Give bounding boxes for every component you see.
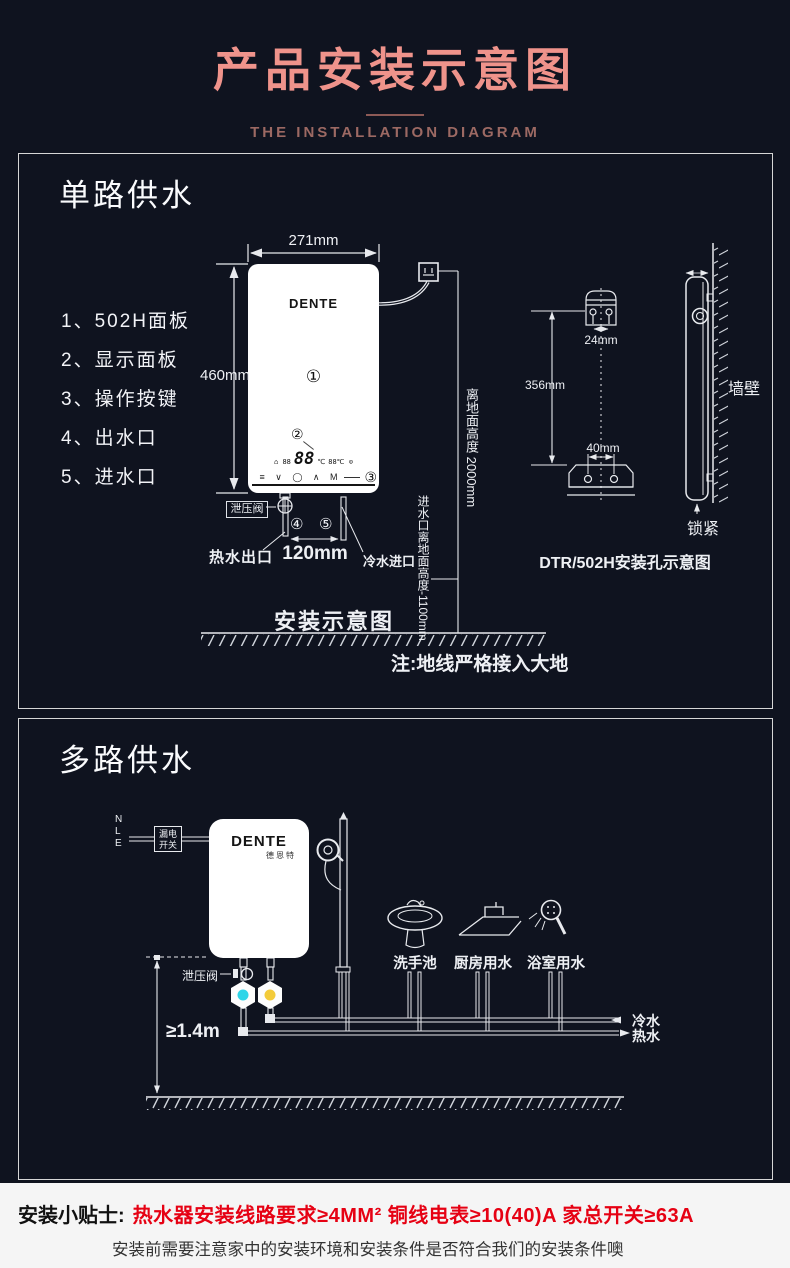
dim-height-label: 460mm	[195, 367, 255, 384]
single-supply-title: 单路供水	[59, 170, 195, 215]
tips-warning: 热水器安装线路要求≥4MM² 铜线电表≥10(40)A 家总开关≥63A	[133, 1199, 694, 1228]
multi-supply-section: 多路供水 N L E 漏电 开关 DENTE 德恩特 洗手池 厨房用水 浴室用水…	[18, 718, 773, 1180]
tips-row: 安装小贴士: 热水器安装线路要求≥4MM² 铜线电表≥10(40)A 家总开关≥…	[0, 1183, 790, 1228]
callout-buttons-leader	[344, 477, 360, 478]
brand-logo-cn: 德恩特	[209, 850, 309, 861]
hot-water-label: 热水	[632, 1026, 660, 1046]
callout-inlet: ⑤	[319, 515, 332, 533]
valve-hot-icon	[258, 981, 282, 1009]
min-height-label: ≥1.4m	[166, 1021, 220, 1043]
wire-l: L	[115, 826, 122, 838]
basin-icon	[388, 901, 442, 948]
brand-logo: DENTE	[209, 833, 309, 850]
header: 产品安装示意图 THE INSTALLATION DIAGRAM	[0, 0, 790, 141]
title-divider	[366, 114, 424, 116]
heater-bottom-line	[252, 484, 375, 486]
hot-outlet-label: 热水出口	[209, 546, 273, 567]
shower-rail-icon	[336, 812, 350, 972]
heater-front-view: DENTE ① ② ⌂ 88 88 ℃ 88℃ ⊙ ≡ ∨ ◯ ∧ M ③	[248, 264, 379, 493]
socket-height-label: 离地面高度 2000mm	[462, 388, 481, 548]
diagram-caption: 安装示意图	[274, 604, 394, 636]
page: 产品安装示意图 THE INSTALLATION DIAGRAM	[0, 0, 790, 1268]
pressure-relief-valve-icon	[220, 969, 253, 980]
brand-logo: DENTE	[248, 296, 379, 311]
mount-caption: DTR/502H安装孔示意图	[539, 549, 711, 573]
inlet-height-label: 进水口离地面高度-1100mm	[415, 495, 432, 645]
wire-e: E	[115, 838, 122, 850]
breaker-line-1: 漏电	[155, 829, 181, 840]
breaker-box: 漏电 开关	[154, 826, 182, 852]
page-subtitle: THE INSTALLATION DIAGRAM	[0, 124, 790, 141]
part-item-3: 3、操作按键	[61, 380, 190, 419]
unit-side-view	[686, 273, 713, 500]
dim-pipe-spacing-label: 120mm	[281, 543, 349, 565]
callout-display: ②	[291, 426, 304, 443]
shower-head-icon	[529, 901, 565, 935]
socket-height-line	[431, 271, 458, 633]
lcd-unit: ℃	[317, 458, 325, 466]
power-socket-icon	[419, 263, 438, 281]
power-cable	[379, 282, 428, 304]
lcd-right: 88℃ ⊙	[328, 458, 353, 466]
multi-supply-linework	[19, 719, 772, 1177]
hot-flow-arrow	[620, 1030, 630, 1037]
lcd-display: ⌂ 88 88 ℃ 88℃ ⊙	[254, 449, 373, 469]
tips-note: 安装前需要注意家中的安装环境和安装条件是否符合我们的安装条件噢	[0, 1228, 790, 1260]
multi-supply-title: 多路供水	[59, 735, 195, 780]
wall-label: 墙壁	[728, 375, 760, 399]
tips-footer: 安装小贴士: 热水器安装线路要求≥4MM² 铜线电表≥10(40)A 家总开关≥…	[0, 1183, 790, 1268]
callout-panel: ①	[248, 367, 379, 387]
valve-cold-icon	[231, 981, 255, 1009]
dim-hole-top-label: 24mm	[583, 333, 619, 347]
part-item-1: 1、502H面板	[61, 302, 190, 341]
ground-note: 注:地线严格接入大地	[391, 649, 568, 676]
dim-hole-span-label: 356mm	[515, 378, 575, 392]
wire-n: N	[115, 814, 122, 826]
ground-hatch	[146, 1097, 624, 1110]
lcd-left: ⌂ 88	[274, 458, 291, 466]
relief-valve-label: 泄压阀	[182, 967, 218, 984]
fixture-label-kitchen: 厨房用水	[443, 952, 523, 973]
kitchen-faucet-icon	[459, 902, 521, 935]
lcd-main: 88	[294, 449, 314, 469]
wall-hatch	[713, 243, 728, 503]
lock-label: 锁紧	[687, 515, 719, 539]
breaker-line-2: 开关	[155, 840, 181, 851]
part-item-5: 5、进水口	[61, 458, 190, 497]
wire-labels: N L E	[115, 814, 122, 850]
dim-width-label: 271mm	[248, 232, 379, 249]
part-item-4: 4、出水口	[61, 419, 190, 458]
part-item-2: 2、显示面板	[61, 341, 190, 380]
button-row: ≡ ∨ ◯ ∧ M	[248, 472, 353, 483]
page-title: 产品安装示意图	[0, 34, 790, 100]
tips-label: 安装小贴士:	[18, 1199, 125, 1228]
heater-multi-view: DENTE 德恩特	[209, 819, 309, 958]
parts-list: 1、502H面板 2、显示面板 3、操作按键 4、出水口 5、进水口	[61, 302, 190, 497]
handheld-shower-icon	[318, 840, 344, 891]
single-supply-section: 单路供水 1、502H面板 2、显示面板 3、操作按键 4、出水口 5、进水口 …	[18, 153, 773, 709]
relief-valve-label: 泄压阀	[226, 501, 268, 518]
dim-hole-bottom-label: 40mm	[585, 441, 621, 455]
fixture-label-bath: 浴室用水	[516, 952, 596, 973]
callout-outlet: ④	[290, 515, 303, 533]
cold-inlet-label: 冷水进口	[363, 551, 415, 570]
